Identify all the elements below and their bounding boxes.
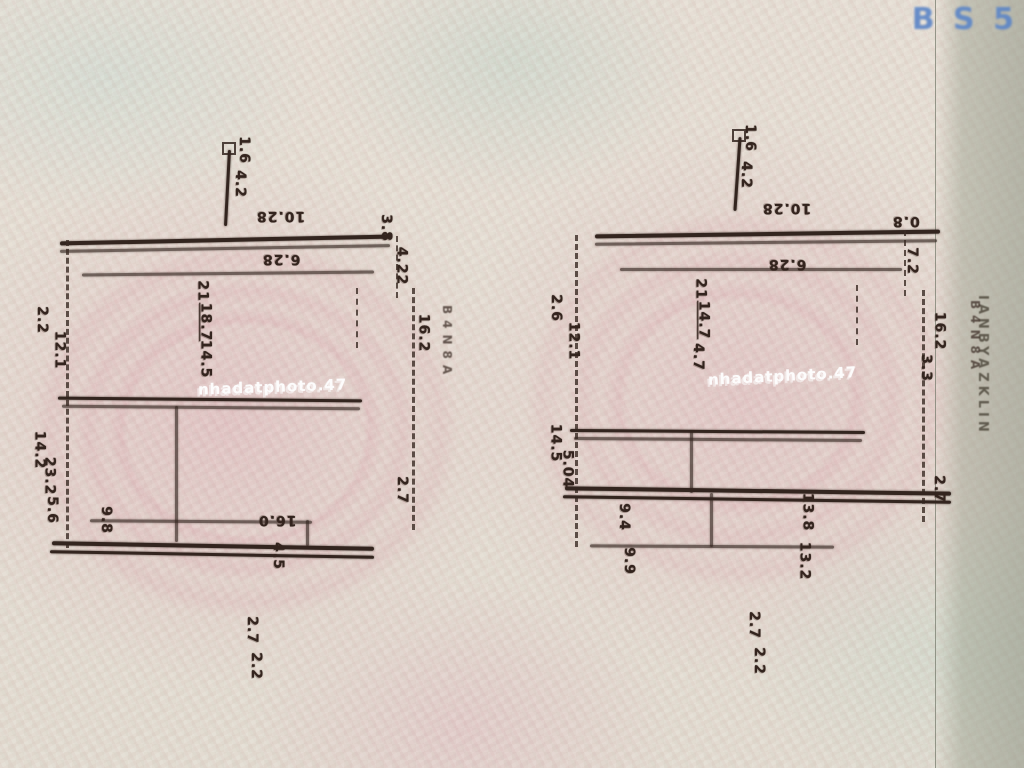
corner-logo-text: B S 5	[912, 2, 1018, 37]
measurement-label: 1.6	[236, 136, 252, 164]
sketch-line	[60, 244, 390, 253]
measurement-label: 10.28	[762, 200, 811, 216]
measurement-label: 4.7	[690, 343, 706, 371]
measurement-label: 16.2	[415, 314, 431, 353]
measurement-label: 2.7	[244, 616, 260, 644]
measurement-label: 6.28	[262, 251, 301, 267]
watermark: nhadatphoto.47	[708, 363, 858, 389]
sketch-dashed-line	[856, 285, 858, 345]
sketch-line	[595, 230, 940, 239]
sketch-dashed-line	[66, 240, 69, 548]
measurement-label: 12.1	[51, 331, 67, 370]
measurement-label: 4.22	[393, 247, 409, 286]
sketch-line	[565, 486, 951, 495]
measurement-label: 1.6	[742, 124, 758, 152]
measurement-label: 7.2	[904, 247, 920, 275]
sketch-line	[690, 431, 693, 493]
measurement-label: 10.28	[256, 208, 305, 224]
measurement-label: 4.2	[738, 161, 754, 189]
measurement-label: 4.2	[232, 170, 248, 198]
measurement-label: 5.04	[559, 450, 575, 489]
measurement-label: 3.8	[378, 214, 394, 242]
measurement-label: 18.7	[197, 303, 213, 342]
cadastral-sketch-left: B4N8A nhadatphoto.47 1.64.210.283.86.284…	[20, 120, 450, 690]
measurement-label: 5.6	[44, 496, 60, 524]
measurement-label: 2.7	[394, 476, 410, 504]
sketch-line	[52, 541, 374, 551]
measurement-label: 9.9	[621, 547, 637, 575]
measurement-label: 16.2	[931, 312, 947, 351]
sketch-line	[574, 437, 862, 442]
measurement-label: 21	[195, 280, 211, 301]
measurement-label: 14.7	[695, 301, 711, 340]
sketch-line	[224, 150, 231, 226]
measurement-label: 2.7	[746, 611, 762, 639]
measurement-label: 2.2	[751, 647, 767, 675]
measurement-label: 21	[693, 278, 709, 299]
sketch-dashed-line	[575, 235, 578, 547]
sketch-line	[50, 550, 374, 559]
sketch-line	[710, 493, 713, 547]
watermark: nhadatphoto.47	[198, 375, 348, 398]
measurement-label: 4.5	[270, 542, 286, 570]
measurement-label: 2.7	[931, 475, 947, 503]
side-tick-marks: B4N8A	[968, 300, 982, 375]
sketch-line	[570, 429, 865, 434]
cadastral-sketch-right: B4N8A nhadatphoto.47 1.64.210.280.86.287…	[540, 105, 990, 685]
measurement-label: 9.4	[616, 503, 632, 531]
measurement-label: 2.2	[34, 306, 50, 334]
measurement-label: 12.1	[565, 322, 581, 361]
measurement-label: 13.8	[799, 493, 815, 532]
measurement-label: 2.6	[548, 294, 564, 322]
measurement-label: 0.8	[892, 213, 920, 229]
sketch-line	[60, 235, 392, 246]
sketch-dashed-line	[922, 290, 925, 522]
sketch-line	[306, 520, 309, 546]
measurement-label: 2.2	[248, 652, 264, 680]
measurement-label: 3.3	[918, 354, 934, 382]
measurement-label: 13.2	[796, 542, 812, 581]
sketch-line	[82, 270, 374, 276]
measurement-label: 23.2	[41, 457, 57, 496]
side-tick-marks: B4N8A	[440, 305, 454, 380]
measurement-label: 16.0	[258, 512, 297, 528]
sketch-line	[62, 405, 360, 411]
measurement-label: 9.8	[98, 506, 114, 534]
measurement-label: 14.5	[197, 340, 213, 379]
sketch-line	[595, 239, 937, 246]
sketch-dashed-line	[356, 288, 358, 348]
sketch-line	[620, 268, 902, 271]
measurement-label: 6.28	[768, 256, 807, 272]
